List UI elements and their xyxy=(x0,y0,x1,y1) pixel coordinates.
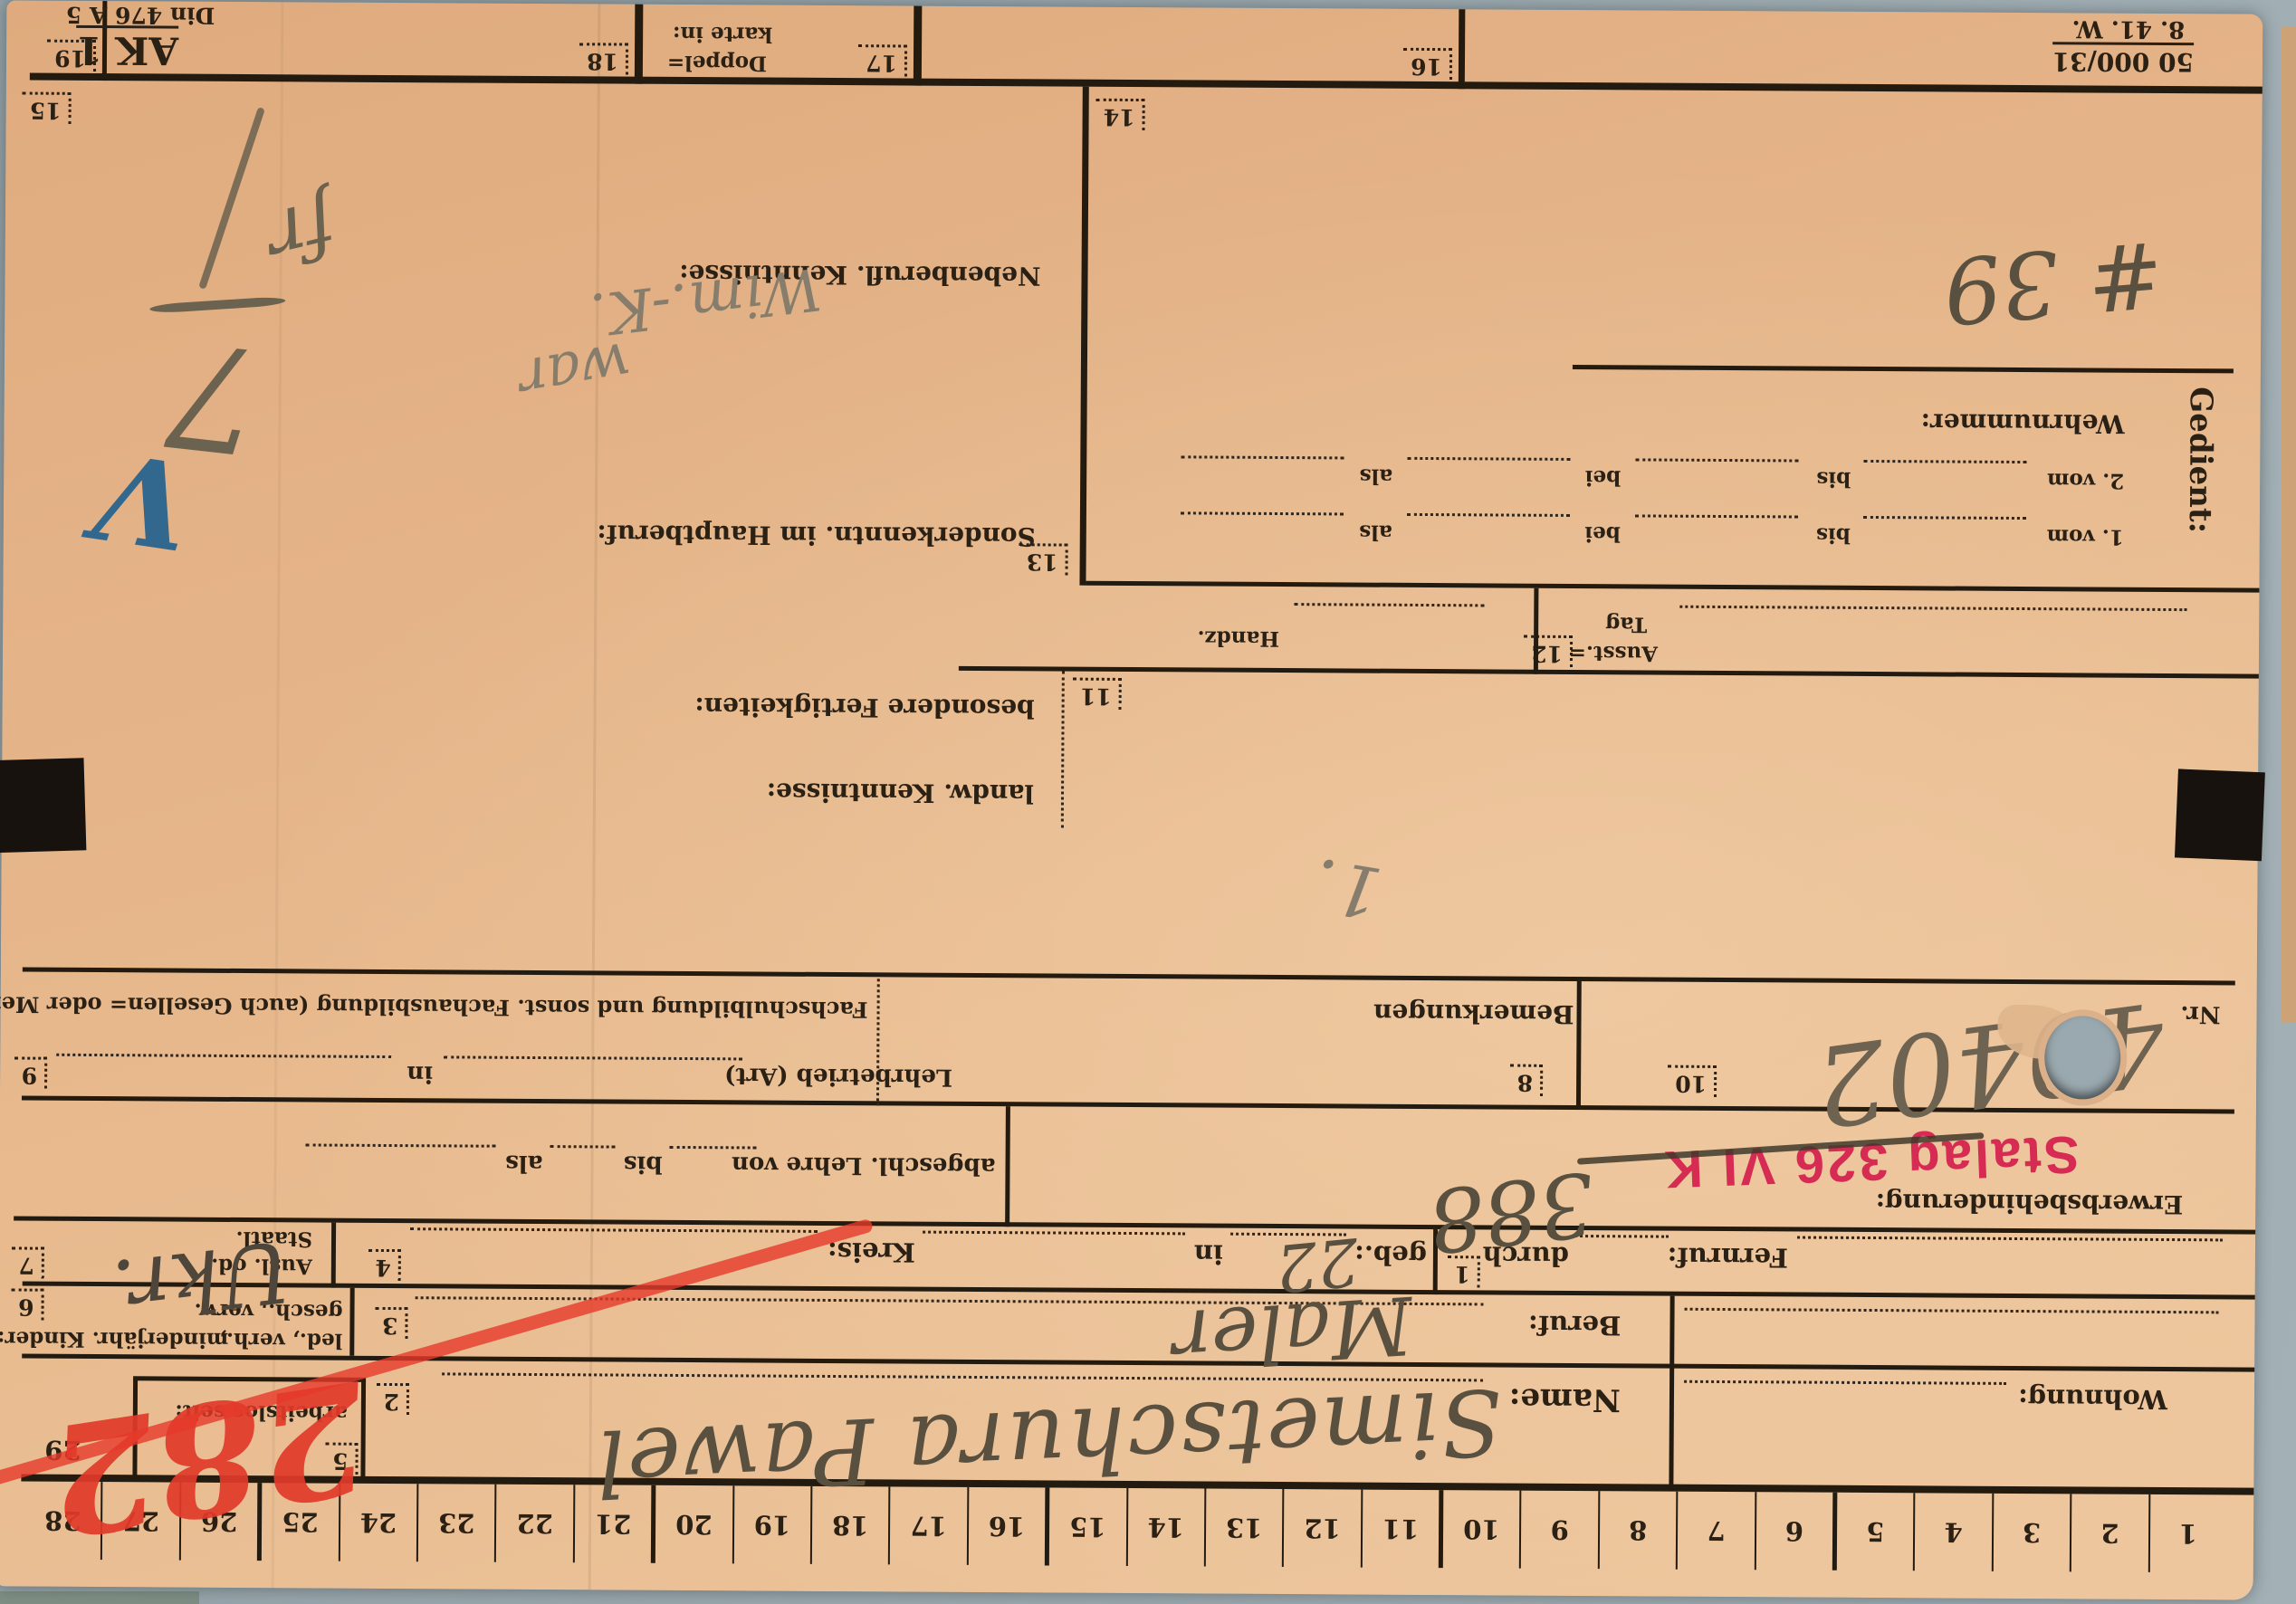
gedient-line xyxy=(1407,457,1570,488)
field-10-marker: 10 xyxy=(1668,1065,1717,1097)
ruler-number: 14 xyxy=(1127,1488,1206,1567)
form-code: AK 1 xyxy=(76,25,178,71)
gedient-line xyxy=(1407,513,1570,544)
column-divider xyxy=(1669,1296,1674,1490)
tape-mark-left xyxy=(2175,769,2265,861)
field-4-marker: 4 xyxy=(368,1249,401,1281)
fernruf-label: Fernruf: xyxy=(1667,1243,1788,1271)
gedient-row1-bei: bei xyxy=(1584,522,1621,544)
lehre-von-line xyxy=(669,1146,756,1177)
lehre-label: abgeschl. Lehre von xyxy=(732,1151,996,1178)
gedient-line xyxy=(1181,455,1344,486)
in-line xyxy=(923,1231,1185,1263)
ausl-divider xyxy=(331,1223,336,1288)
geb-label: geb.: xyxy=(1354,1241,1427,1269)
gedient-row2-vom: 2. vom xyxy=(2047,469,2124,492)
in2-label: in xyxy=(407,1061,433,1085)
ruler-number: 11 xyxy=(1363,1490,1444,1569)
box14-right-border xyxy=(1079,87,1088,586)
bottom-strip-line xyxy=(30,73,2263,94)
name-label: Name: xyxy=(1509,1382,1621,1415)
ruler-number: 13 xyxy=(1206,1489,1285,1568)
ausst-line xyxy=(1679,606,2186,638)
field-8-marker: 8 xyxy=(1510,1065,1544,1096)
in-label: in xyxy=(1194,1240,1223,1268)
tape-mark-right xyxy=(0,758,86,853)
nr-box-right xyxy=(1576,981,1582,1110)
erwerb-label: Erwerbsbehinderung: xyxy=(1876,1189,2184,1217)
ruler-number: 7 xyxy=(1678,1492,1756,1571)
print-run-number: 50 000/31 xyxy=(2052,42,2195,75)
gedient-line xyxy=(1635,458,1798,489)
landw-label: landw. Kenntnisse: xyxy=(767,778,1035,807)
field-14-marker: 14 xyxy=(1096,99,1145,130)
ausst-label-1: Ausst.= xyxy=(1569,642,1659,664)
wohnung-line xyxy=(1684,1380,2006,1412)
gedient-line xyxy=(1863,460,2026,491)
lehre-divider xyxy=(1005,1106,1010,1227)
strip-divider xyxy=(1534,588,1539,674)
wohnung-line2 xyxy=(1684,1308,2218,1341)
gedient-row1-bis: bis xyxy=(1816,523,1851,545)
ruler-number: 9 xyxy=(1521,1491,1600,1570)
punch-hole xyxy=(2044,1016,2121,1100)
ruler-number: 10 xyxy=(1443,1490,1522,1569)
beruf-label: Beruf: xyxy=(1528,1311,1622,1339)
gedient-row2-bis: bis xyxy=(1816,467,1851,489)
wehrnummer-label: Wehrnummer: xyxy=(1921,409,2125,437)
ruler-number: 2 xyxy=(2071,1494,2150,1572)
scanner-background-strip xyxy=(2282,27,2296,1023)
kreis-label: Kreis: xyxy=(828,1238,915,1266)
lehre-als-line xyxy=(305,1143,495,1174)
ausst-label-2: Tag xyxy=(1605,613,1647,635)
ruler-number: 6 xyxy=(1755,1492,1837,1571)
strip16-divider xyxy=(1459,9,1466,89)
ruler-number: 23 xyxy=(418,1484,497,1562)
strip-top-line xyxy=(959,666,2259,679)
handz-label: Handz. xyxy=(1198,626,1280,649)
in2-line xyxy=(56,1054,391,1085)
field-2-marker: 2 xyxy=(376,1383,409,1415)
paper-crease xyxy=(588,4,601,1590)
blue-check-mark: V xyxy=(88,424,200,576)
scanner-background-strip-bottom xyxy=(0,1591,199,1604)
als-label: als xyxy=(505,1150,543,1175)
gedient-line xyxy=(1181,511,1344,542)
din-standard: Din 476 A 5 xyxy=(66,3,215,27)
marital-label-1: led., verh., xyxy=(219,1329,342,1351)
doppelkarte-label-1: Doppel= xyxy=(667,52,767,74)
field-6-marker: 6 xyxy=(11,1288,44,1320)
strip18-divider xyxy=(635,5,644,84)
nr-label: Nr. xyxy=(2180,1001,2220,1026)
ruler-number: 16 xyxy=(969,1487,1050,1566)
lehre-bis-line xyxy=(550,1145,615,1175)
gedient-row1-als: als xyxy=(1359,520,1392,542)
row-line-2 xyxy=(23,1282,2255,1300)
ruler-number: 8 xyxy=(1600,1491,1679,1570)
pencil-small-mark: 1. xyxy=(1307,842,1387,933)
address-line3 xyxy=(1797,1236,2223,1269)
field-17-marker: 17 xyxy=(858,44,907,76)
field-12-marker: 12 xyxy=(1524,635,1573,667)
field11-dotted-divider xyxy=(1058,672,1065,828)
bis-label: bis xyxy=(624,1150,663,1176)
corner-pencil-slash xyxy=(198,107,265,290)
fertigkeiten-label: besondere Fertigkeiten: xyxy=(694,693,1034,722)
print-date: 8. 41. W. xyxy=(2071,15,2185,41)
gedient-bottom-line xyxy=(1573,365,2234,373)
field-3-marker: 3 xyxy=(375,1307,408,1339)
lehrbetrieb-line xyxy=(444,1055,742,1087)
field-9-marker: 9 xyxy=(14,1056,48,1088)
lehrbetrieb-label: Lehrbetrieb (Art) xyxy=(724,1063,952,1089)
kinder-label: minderjähr. Kinder: xyxy=(0,1327,228,1351)
sonder-label: Sonderkenntn. im Hauptberuf: xyxy=(597,520,1036,549)
geb-line xyxy=(1230,1233,1346,1264)
ruler-number: 1 xyxy=(2149,1494,2226,1573)
field-11-marker: 11 xyxy=(1073,678,1122,710)
pencil-note-line2: Wim.-K. xyxy=(587,254,825,348)
wohnung-label: Wohnung: xyxy=(2018,1385,2167,1413)
bemerkungen-label: Bemerkungen xyxy=(1373,999,1574,1027)
field-15-marker: 15 xyxy=(23,92,72,124)
gedient-row2-bei: bei xyxy=(1585,466,1622,488)
camp-number-handwriting: 388 xyxy=(1423,1151,1600,1271)
gedient-heading: Gedient: xyxy=(2182,387,2219,533)
ruler-number: 12 xyxy=(1284,1489,1363,1568)
hash-number-handwriting: # 39 xyxy=(1939,221,2167,344)
field-16-marker: 16 xyxy=(1403,48,1452,80)
strip-bottom-line xyxy=(1086,581,2259,593)
gedient-line xyxy=(1863,516,2026,547)
leitkarte-card-back: 1234567891011121314151617181920212223242… xyxy=(0,0,2263,1599)
field-7-marker: 7 xyxy=(11,1246,44,1278)
ruler-number: 22 xyxy=(496,1485,575,1563)
row-line-5 xyxy=(23,968,2235,986)
ruler-number: 3 xyxy=(1994,1494,2072,1572)
handz-line xyxy=(1294,603,1484,634)
gedient-row1-vom: 1. vom xyxy=(2047,525,2124,548)
fachschule-label: Fachschulbildung und sonst. Fachausbildu… xyxy=(0,992,868,1021)
strip17-divider xyxy=(914,6,923,86)
ruler-number: 4 xyxy=(1915,1493,1994,1571)
ruler-number: 5 xyxy=(1837,1493,1916,1571)
nationality-handwriting: Ukr. xyxy=(108,1222,295,1339)
field-18-marker: 18 xyxy=(579,43,628,74)
ruler-number: 15 xyxy=(1049,1487,1128,1566)
corner-pencil-fr: fr xyxy=(259,180,344,283)
gedient-line xyxy=(1635,514,1798,545)
gedient-row2-als: als xyxy=(1360,464,1393,486)
doppelkarte-label-2: karte in: xyxy=(673,23,772,45)
